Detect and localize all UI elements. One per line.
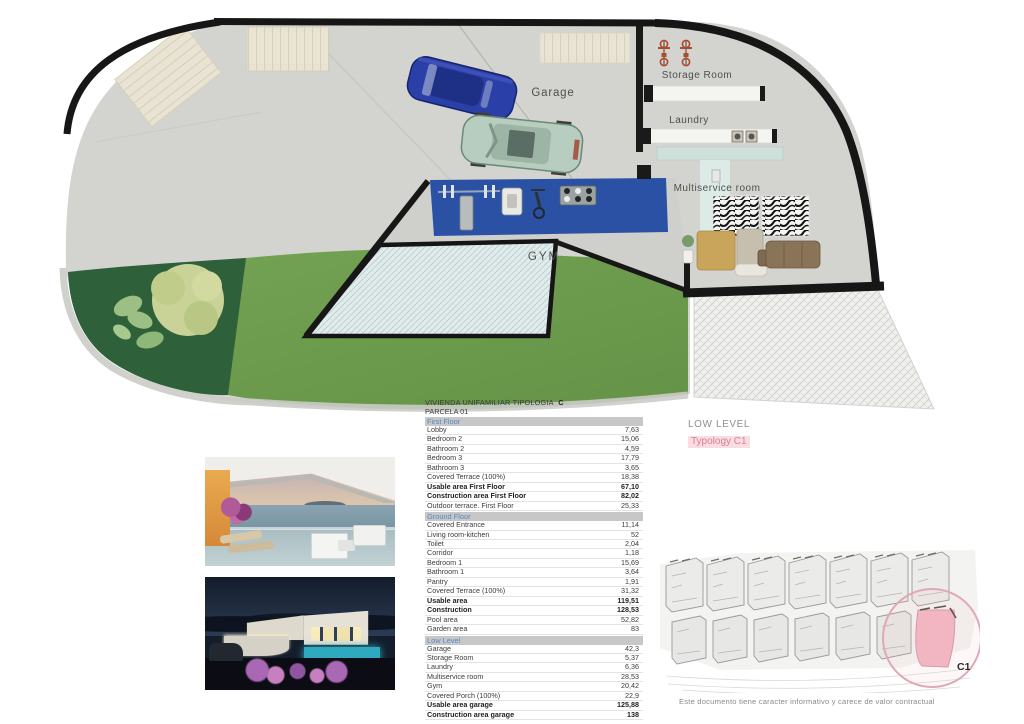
site-plan: C1 <box>660 548 980 693</box>
typology-badge: Typology C1 <box>688 436 750 448</box>
gym-label: GYM <box>528 251 560 263</box>
section-header-first-floor: First Floor <box>425 417 643 426</box>
level-legend: LOW LEVEL Typology C1 <box>688 419 750 449</box>
garage-stairs-icon <box>540 33 630 63</box>
area-row: Living room-kitchen 52 <box>425 531 643 540</box>
laundry-label: Laundry <box>669 115 709 126</box>
upper-level-hatch <box>694 288 934 409</box>
level-name: LOW LEVEL <box>688 419 750 431</box>
table-title: VIVIENDA UNIFAMILIAR TIPOLOGIA C <box>425 398 643 407</box>
low-level-rows: Garage 42,3 Storage Room 5,37 Laundry 6,… <box>425 645 643 721</box>
garage-label: Garage <box>531 87 574 99</box>
section-header-low-level: Low Level <box>425 636 643 645</box>
area-row: Multiservice room 28,53 <box>425 673 643 682</box>
ground-floor-rows: Covered Entrance 11,14 Living room-kitch… <box>425 521 643 634</box>
multiservice-label: Multiservice room <box>674 183 761 194</box>
flower-bed <box>239 652 361 686</box>
area-row: Bathroom 1 3,64 <box>425 568 643 577</box>
area-row: Garden area 83 <box>425 625 643 634</box>
floor-plan: Garage GYM Storage Room Laundry Multiser… <box>0 0 1024 420</box>
storage-label: Storage Room <box>662 70 732 81</box>
area-row: Storage Room 5,37 <box>425 654 643 663</box>
first-floor-rows: Lobby 7,63 Bedroom 2 15,06 Bathroom 2 4,… <box>425 426 643 511</box>
area-row: Outdoor terrace. First Floor 25,33 <box>425 502 643 511</box>
unit-c1-label: C1 <box>957 661 971 673</box>
area-table: VIVIENDA UNIFAMILIAR TIPOLOGIA C PARCELA… <box>425 398 643 724</box>
disclaimer-caption: Este documento tiene caracter informativ… <box>679 697 935 706</box>
villa-night-photo <box>205 577 395 690</box>
table-subtitle: PARCELA 01 <box>425 407 643 416</box>
area-row: Construction area garage 138 <box>425 711 643 720</box>
bougainvillea <box>216 494 258 527</box>
car-silhouette <box>209 643 243 661</box>
stairs-icon <box>247 27 329 71</box>
terrace-sea-view-photo <box>205 457 395 566</box>
area-row: Toilet 2,04 <box>425 540 643 549</box>
outdoor-sofa <box>353 525 385 547</box>
page: Garage GYM Storage Room Laundry Multiser… <box>0 0 1024 724</box>
lit-windows <box>311 627 360 642</box>
